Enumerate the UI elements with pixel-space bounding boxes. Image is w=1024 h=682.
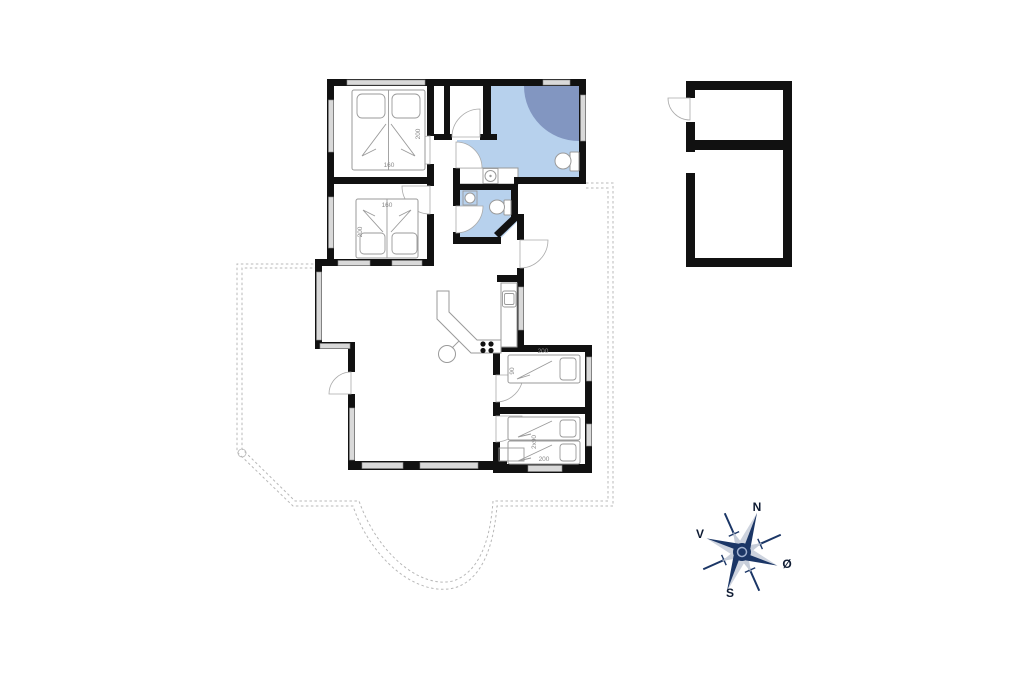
window-icon — [362, 463, 403, 469]
terrace-corner-marker — [238, 449, 246, 457]
annex-door-icon — [668, 98, 690, 120]
bed-length-label: 200 — [357, 226, 364, 237]
window-icon — [350, 408, 355, 460]
toilet-icon — [490, 200, 505, 214]
compass-north-label: N — [753, 500, 762, 514]
round-sink-icon — [439, 346, 456, 363]
compass-rose: N V Ø S — [691, 499, 792, 605]
bedroom-middle: 160 200 — [356, 199, 418, 258]
bed-length-label: 200 — [538, 348, 549, 355]
bed-width-label: 160 — [382, 202, 393, 209]
compass-west-label: V — [696, 527, 704, 541]
terrace-door-icon — [329, 372, 351, 394]
window-icon — [519, 287, 524, 330]
bedroom-top: 200 160 — [352, 90, 425, 170]
window-icon — [392, 261, 422, 266]
compass-east-label: Ø — [782, 557, 791, 571]
window-icon — [347, 80, 425, 85]
terrace-outline — [237, 183, 613, 589]
window-icon — [587, 357, 592, 381]
bed-width-label: 160 — [384, 162, 395, 169]
window-icon — [581, 95, 586, 141]
bed-width-label: 90 — [509, 367, 516, 375]
floorplan-canvas: 200 160 160 200 200 90 2x90 200 — [0, 0, 1024, 682]
annex — [668, 81, 792, 267]
window-icon — [329, 100, 334, 152]
floorplan-page: 200 160 160 200 200 90 2x90 200 — [0, 0, 1024, 682]
toilet-icon — [504, 200, 511, 215]
window-icon — [317, 272, 322, 340]
compass-south-label: S — [726, 586, 734, 600]
door-icon — [452, 109, 480, 137]
toilet-icon — [555, 153, 571, 169]
sink-icon — [465, 193, 475, 203]
bed-length-label: 200 — [539, 456, 550, 463]
bed-length-label: 200 — [415, 128, 422, 139]
bedroom-small-bottom: 2x90 200 — [508, 417, 580, 464]
kitchen-counter — [501, 283, 517, 347]
entrance-door-icon — [520, 240, 548, 268]
window-icon — [420, 463, 478, 469]
bedroom-small-top: 200 90 — [508, 348, 580, 383]
window-icon — [329, 197, 334, 248]
window-icon — [338, 261, 370, 266]
window-icon — [528, 466, 562, 472]
window-icon — [320, 344, 350, 349]
bed-width-label: 2x90 — [531, 435, 538, 449]
window-icon — [543, 80, 570, 85]
window-icon — [587, 424, 592, 446]
